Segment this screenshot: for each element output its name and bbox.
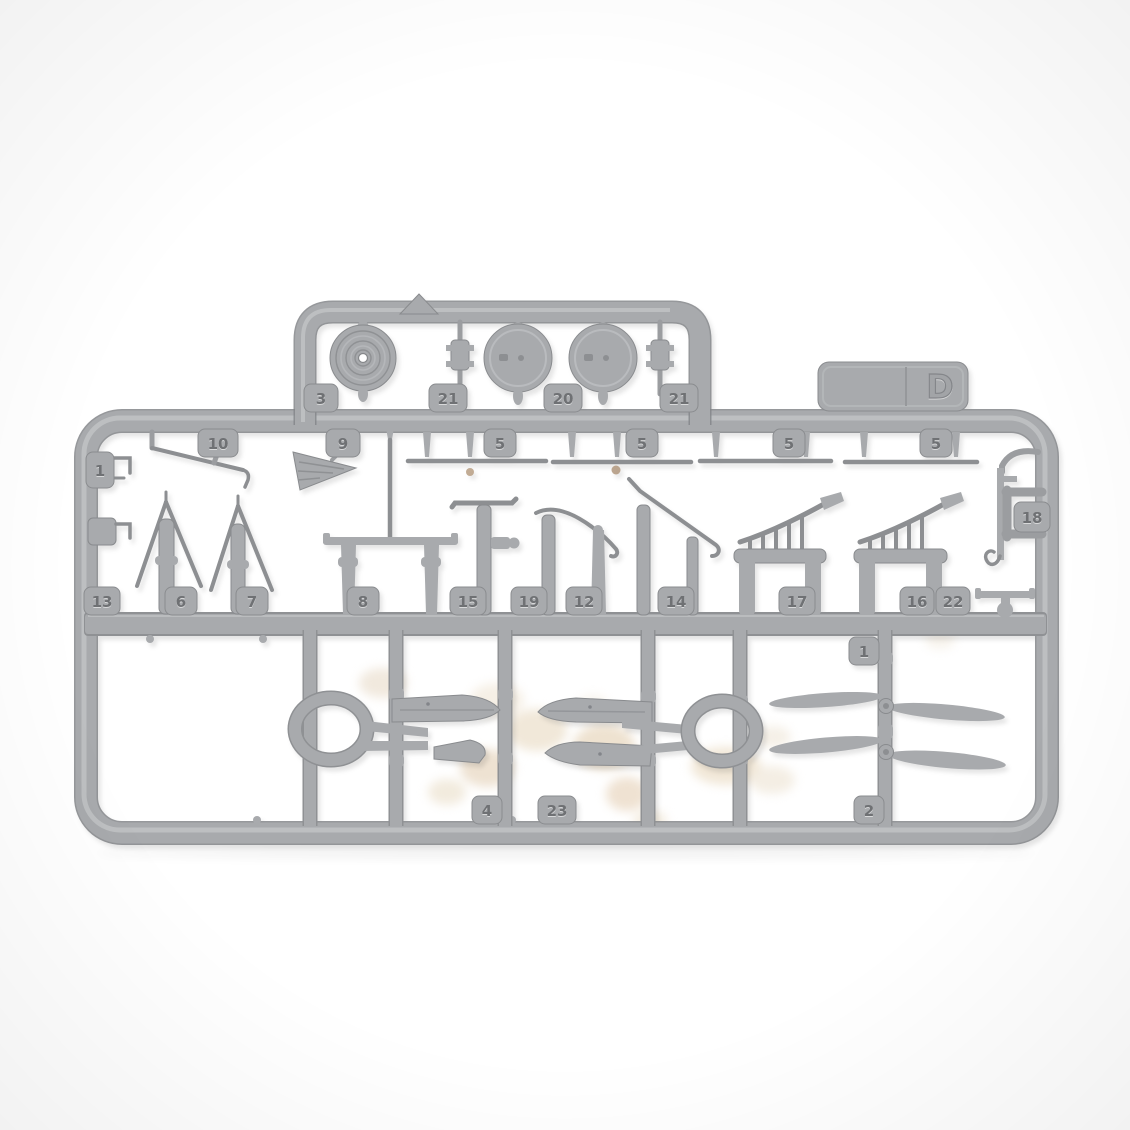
propeller-blade — [888, 747, 1007, 773]
float-hole — [598, 752, 602, 756]
part-tab-21-right: 21 — [660, 384, 698, 412]
svg-text:7: 7 — [247, 593, 257, 611]
part-tab-22: 22 — [936, 587, 970, 615]
blur-blob — [428, 779, 466, 805]
part-tab-15: 15 — [450, 587, 486, 615]
part-disc-left — [484, 322, 552, 405]
svg-text:19: 19 — [519, 593, 540, 611]
svg-text:21: 21 — [669, 390, 690, 408]
part-spar-5c — [700, 432, 831, 461]
gate-letter: D — [926, 367, 953, 406]
part-tab-3: 3 — [304, 384, 338, 412]
svg-text:5: 5 — [784, 435, 794, 453]
svg-text:18: 18 — [1022, 509, 1043, 527]
part-tab-21-left: 21 — [429, 384, 467, 412]
part-tab-5b: 5 — [626, 429, 658, 457]
part-tab-13: 13 — [84, 587, 120, 615]
propeller-hub-hole — [883, 749, 889, 755]
part-tab-2: 2 — [854, 796, 884, 824]
part-coiled-disc — [330, 320, 396, 402]
runner-collar — [878, 652, 893, 665]
propeller-blade — [769, 689, 884, 711]
part-tab-5a: 5 — [484, 429, 516, 457]
part-tab-12: 12 — [566, 587, 602, 615]
runner-collar — [498, 752, 513, 765]
part-small-cylinder-left — [446, 322, 474, 394]
svg-text:16: 16 — [907, 593, 928, 611]
part-tab-23: 23 — [538, 796, 576, 824]
float-lower — [434, 740, 485, 763]
svg-text:23: 23 — [547, 802, 568, 820]
svg-text:3: 3 — [316, 390, 326, 408]
part-tab-10: 10 — [198, 429, 238, 457]
ground-shadow — [96, 847, 1036, 859]
float-upper — [392, 695, 500, 722]
part-tab-18: 18 — [1014, 502, 1050, 532]
rail-nub — [146, 635, 154, 643]
part-tab-4: 4 — [472, 796, 502, 824]
part-tab-9: 9 — [326, 429, 360, 457]
part-spar-5a — [408, 432, 546, 461]
part-pennant-9 — [293, 452, 356, 490]
svg-text:9: 9 — [338, 435, 348, 453]
svg-text:6: 6 — [176, 593, 186, 611]
blur-blob — [749, 766, 795, 794]
rail-nub — [259, 635, 267, 643]
part-tab-6: 6 — [165, 587, 197, 615]
svg-text:14: 14 — [666, 593, 687, 611]
runner-collar — [498, 688, 513, 701]
part-tab-7: 7 — [236, 587, 268, 615]
svg-text:12: 12 — [574, 593, 595, 611]
part-tab-20: 20 — [544, 384, 582, 412]
part-bracket-1 — [114, 458, 130, 478]
svg-text:1: 1 — [95, 462, 105, 480]
part-bracket-13 — [88, 518, 130, 545]
float-hole — [588, 705, 592, 709]
svg-text:1: 1 — [859, 643, 869, 661]
float-chine-line — [548, 711, 645, 712]
part-spar-5d — [845, 432, 977, 462]
runner-collar — [389, 754, 404, 767]
float-hole — [426, 702, 430, 706]
svg-text:22: 22 — [943, 593, 964, 611]
part-tab-8: 8 — [347, 587, 379, 615]
part-tab-17: 17 — [779, 587, 815, 615]
part-tab-1-propeller: 1 — [849, 637, 879, 665]
part-tab-5c: 5 — [773, 429, 805, 457]
svg-text:5: 5 — [495, 435, 505, 453]
gate-label-tab: D — [818, 362, 968, 411]
part-spar-5b — [553, 432, 691, 462]
fork-bar — [362, 741, 428, 751]
part-tab-5d: 5 — [920, 429, 952, 457]
dust-dot — [612, 466, 621, 475]
dust-dot — [466, 468, 474, 476]
svg-text:10: 10 — [208, 435, 229, 453]
sprue-illustration: D — [0, 0, 1130, 1130]
svg-text:20: 20 — [553, 390, 574, 408]
part-tab-19: 19 — [511, 587, 547, 615]
propeller-blade — [887, 699, 1006, 724]
product-photo-model-sprue: D — [0, 0, 1130, 1130]
part-tab-16: 16 — [900, 587, 934, 615]
svg-text:8: 8 — [358, 593, 368, 611]
svg-text:17: 17 — [787, 593, 808, 611]
svg-text:15: 15 — [458, 593, 479, 611]
svg-text:13: 13 — [92, 593, 113, 611]
part-tab-14: 14 — [658, 587, 694, 615]
svg-text:5: 5 — [637, 435, 647, 453]
svg-text:4: 4 — [482, 802, 492, 820]
rail-nub — [253, 816, 261, 824]
part-corner-bracket — [1002, 451, 1038, 472]
runner-collar — [878, 724, 893, 739]
svg-text:21: 21 — [438, 390, 459, 408]
propeller-hub-hole — [883, 703, 889, 709]
part-small-cylinder-right — [646, 322, 674, 394]
middle-rail — [84, 612, 1047, 643]
part-tab-1: 1 — [86, 452, 114, 488]
svg-text:5: 5 — [931, 435, 941, 453]
svg-text:2: 2 — [864, 802, 874, 820]
